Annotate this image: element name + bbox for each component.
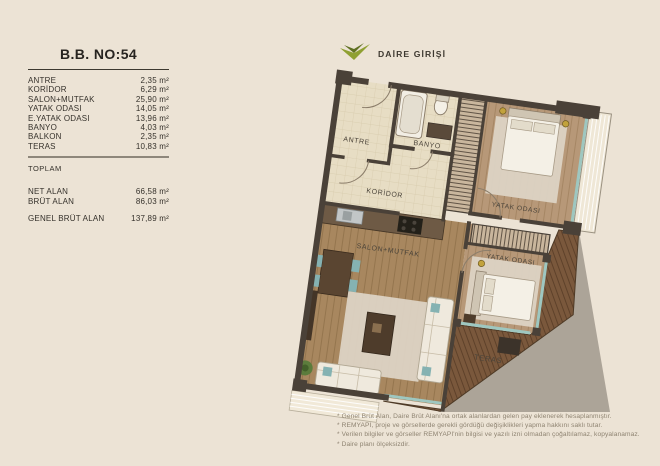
room-row-label: YATAK ODASI [28,104,82,113]
room-row: SALON+MUTFAK25,90 m² [28,95,169,104]
room-row-value: 10,83 m² [136,142,169,151]
footnotes: * Genel Brüt Alan, Daire Brüt Alanı'na o… [337,412,657,449]
section-divider [28,156,169,158]
room-row: KORİDOR6,29 m² [28,85,169,94]
total-row-value: 66,58 m² [136,187,169,196]
room-row-value: 14,05 m² [136,104,169,113]
toplam-label: TOPLAM [28,164,169,173]
footnote-line: * Verilen bilgiler ve görseller REMYAPI'… [337,430,657,439]
area-panel: B.B. NO:54 ANTRE2,35 m²KORİDOR6,29 m²SAL… [28,46,169,223]
total-row: BRÜT ALAN86,03 m² [28,197,169,206]
room-row-label: KORİDOR [28,85,67,94]
room-row: E.YATAK ODASI13,96 m² [28,114,169,123]
entrance-label: DAİRE GİRİŞİ [378,49,446,59]
total-row-label: BRÜT ALAN [28,197,74,206]
total-row-value: 86,03 m² [136,197,169,206]
room-row-value: 25,90 m² [136,95,169,104]
footnote-line: * Daire planı ölçeksizdir. [337,440,657,449]
room-row-label: BALKON [28,132,62,141]
genel-row: GENEL BRÜT ALAN 137,89 m² [28,214,169,223]
floor-plan: ANTRE BANYO KORİDOR YATAK ODASI SALON+MU… [278,20,660,466]
room-row: TERAS10,83 m² [28,142,169,151]
room-row-value: 2,35 m² [140,76,169,85]
floor-plan-svg: ANTRE BANYO KORİDOR YATAK ODASI SALON+MU… [278,20,660,466]
bedroom2-furniture [463,256,542,333]
room-row: ANTRE2,35 m² [28,76,169,85]
room-row-value: 6,29 m² [140,85,169,94]
room-row: YATAK ODASI14,05 m² [28,104,169,113]
title-divider [28,69,169,70]
room-row-label: BANYO [28,123,57,132]
genel-value: 137,89 m² [131,214,169,223]
room-row-value: 2,35 m² [140,132,169,141]
room-row-label: E.YATAK ODASI [28,114,90,123]
room-row-label: SALON+MUTFAK [28,95,95,104]
total-row-label: NET ALAN [28,187,68,196]
footnote-line: * REMYAPI, proje ve görsellerde gerekli … [337,421,657,430]
total-row: NET ALAN66,58 m² [28,187,169,196]
ac-unit [497,337,521,356]
footnote-line: * Genel Brüt Alan, Daire Brüt Alanı'na o… [337,412,657,421]
room-rows: ANTRE2,35 m²KORİDOR6,29 m²SALON+MUTFAK25… [28,76,169,151]
room-row-value: 4,03 m² [140,123,169,132]
genel-label: GENEL BRÜT ALAN [28,214,104,223]
room-row-label: ANTRE [28,76,56,85]
room-row-value: 13,96 m² [136,114,169,123]
room-row: BALKON2,35 m² [28,132,169,141]
bedroom1-furniture [485,106,570,203]
total-rows: NET ALAN66,58 m²BRÜT ALAN86,03 m² [28,187,169,206]
entrance-marker: DAİRE GİRİŞİ [340,43,446,60]
unit-title: B.B. NO:54 [28,46,169,62]
room-row-label: TERAS [28,142,56,151]
room-row: BANYO4,03 m² [28,123,169,132]
